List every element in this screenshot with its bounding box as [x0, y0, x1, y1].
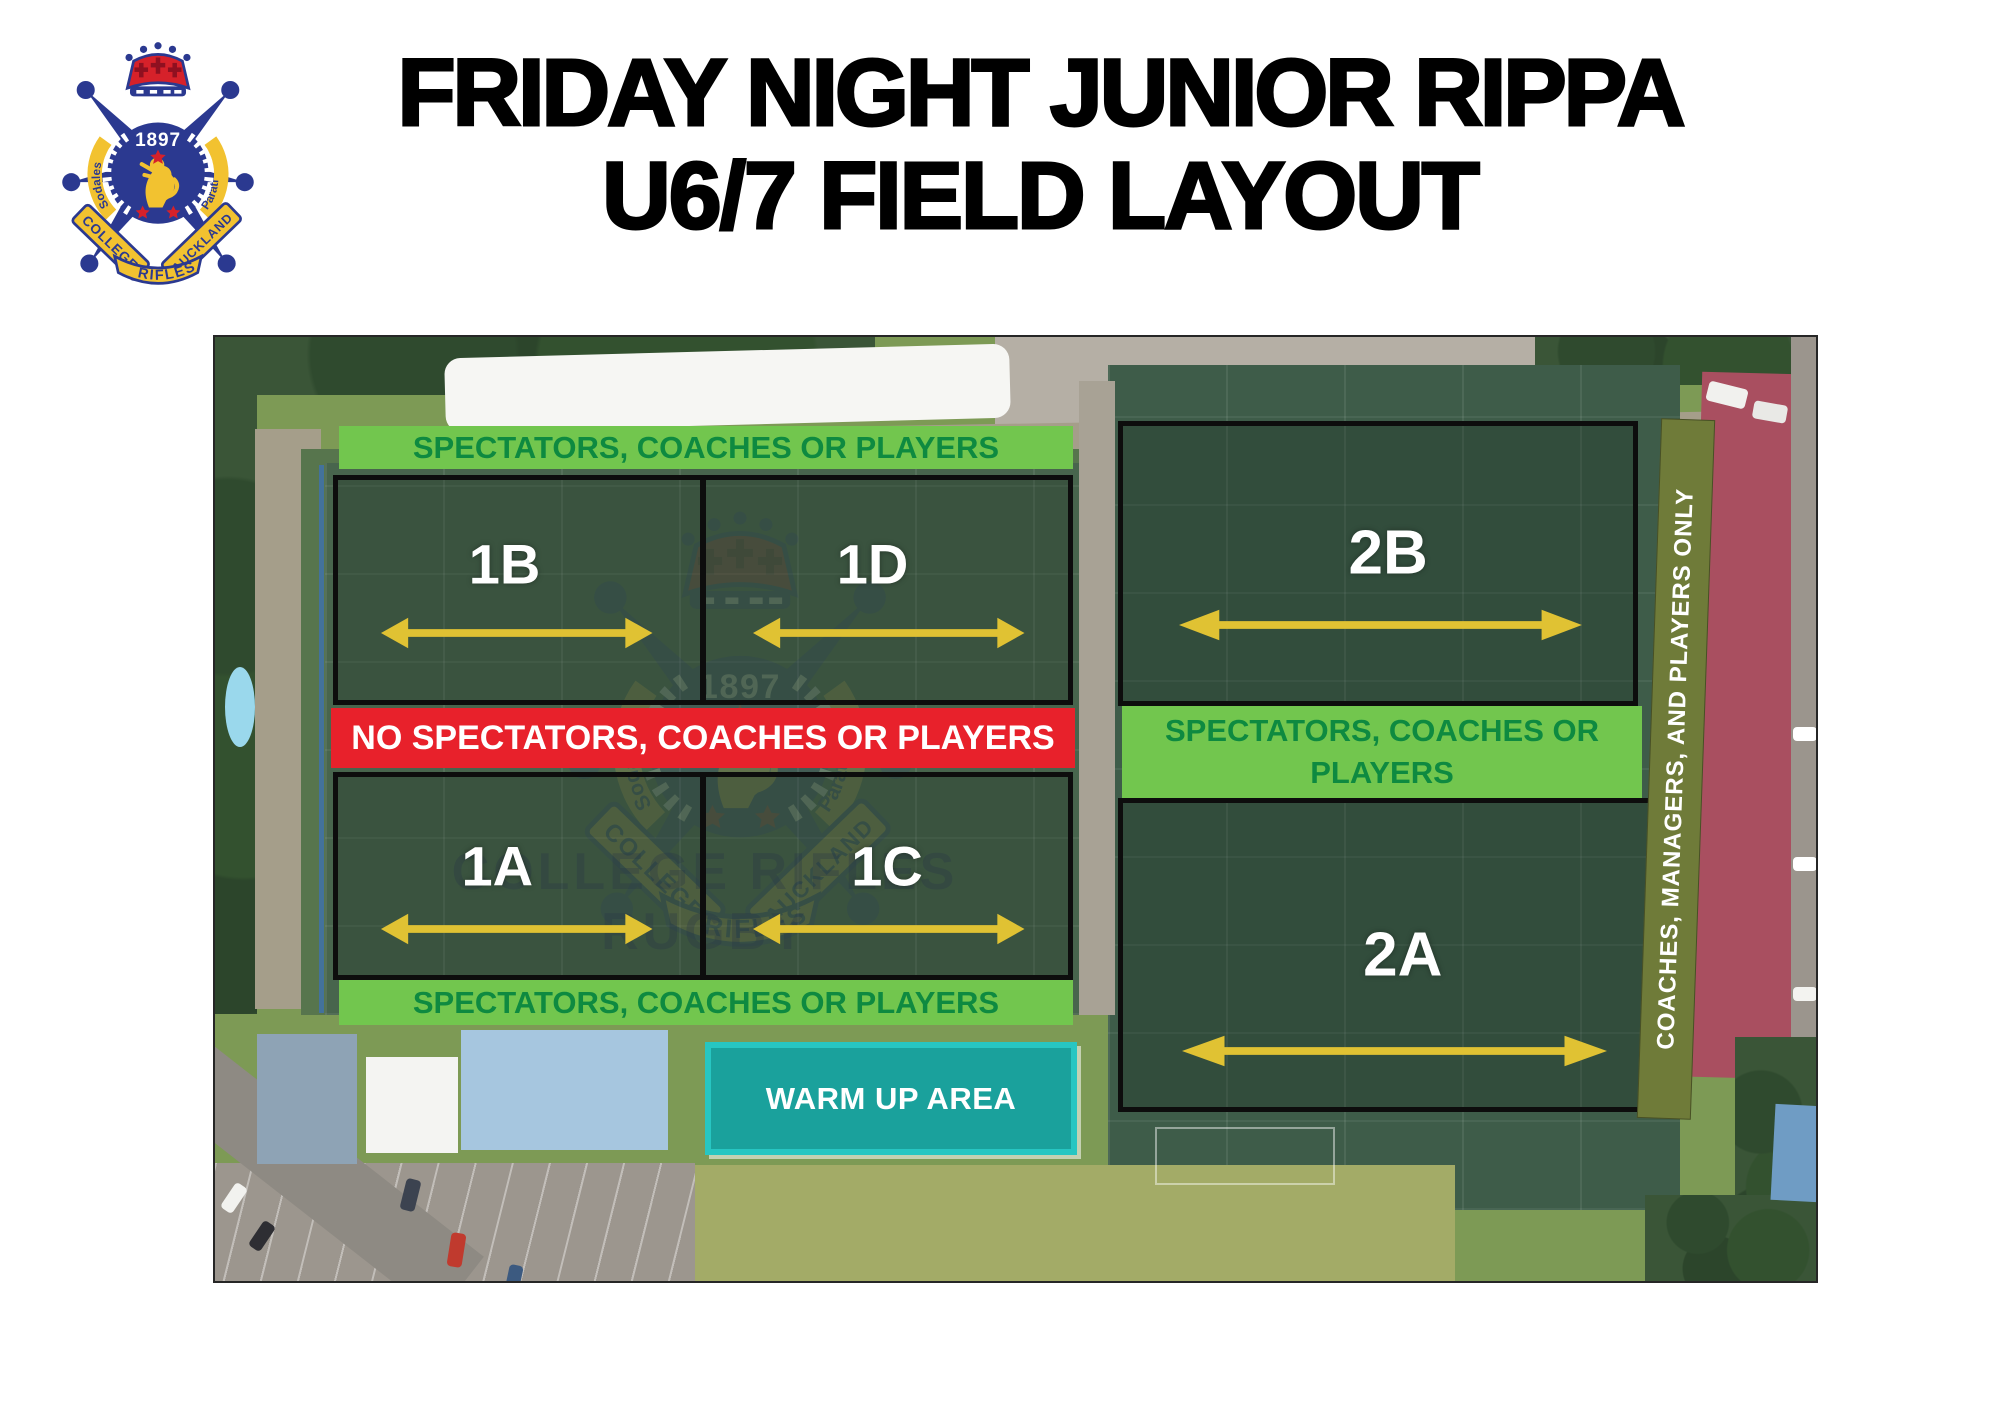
title-line1: FRIDAY NIGHT JUNIOR RIPPA — [250, 42, 1830, 145]
page-title: FRIDAY NIGHT JUNIOR RIPPA U6/7 FIELD LAY… — [250, 42, 1830, 247]
trees-bottom-right — [1645, 1195, 1818, 1283]
aerial-photo: COLLEGE RIFLES RUGBY SPECTATORS, COACHES… — [213, 335, 1818, 1283]
grass-bottom — [675, 1165, 1455, 1283]
zone-banner-top-left: SPECTATORS, COACHES OR PLAYERS — [339, 426, 1073, 469]
field-1D: 1D — [701, 475, 1073, 705]
field-label-1D: 1D — [837, 531, 909, 596]
zone-banner-no-go: NO SPECTATORS, COACHES OR PLAYERS — [331, 708, 1075, 768]
field-label-1C: 1C — [851, 834, 923, 899]
field-width-arrow-icon — [1182, 1034, 1607, 1068]
field-width-arrow-icon — [1179, 608, 1582, 642]
field-1C: 1C — [701, 772, 1073, 980]
parked-car — [1793, 727, 1817, 741]
field-2A: 2A — [1118, 798, 1666, 1112]
goal-box-lines — [1155, 1127, 1335, 1185]
field-label-1B: 1B — [469, 531, 541, 596]
field-2B: 2B — [1118, 421, 1638, 706]
warm-up-area: WARM UP AREA — [705, 1042, 1077, 1155]
blue-roof-right — [1771, 1104, 1818, 1202]
parked-car — [1793, 857, 1817, 871]
roof-light-blue — [461, 1030, 668, 1150]
field-label-2A: 2A — [1363, 920, 1442, 991]
field-1A: 1A — [333, 772, 705, 980]
parked-car — [1793, 987, 1817, 1001]
field-width-arrow-icon — [381, 616, 653, 650]
zone-banner-right: SPECTATORS, COACHES OR PLAYERS SPECTATOR… — [1122, 706, 1642, 798]
club-crest-logo — [52, 34, 264, 296]
field-width-arrow-icon — [753, 616, 1025, 650]
zone-banner-bottom-left: SPECTATORS, COACHES OR PLAYERS — [339, 980, 1073, 1025]
roof-white — [366, 1057, 458, 1153]
title-line2: U6/7 FIELD LAYOUT — [250, 145, 1830, 248]
turf-edge-line — [319, 465, 324, 1013]
field-width-arrow-icon — [381, 912, 653, 946]
field-width-arrow-icon — [753, 912, 1025, 946]
path-between-blocks — [1079, 381, 1115, 1015]
roof-blue-grey — [257, 1034, 357, 1164]
white-roof-top — [444, 344, 1011, 433]
field-label-2B: 2B — [1349, 517, 1428, 588]
field-label-1A: 1A — [461, 834, 533, 899]
field-1B: 1B — [333, 475, 705, 705]
pool — [225, 667, 255, 747]
